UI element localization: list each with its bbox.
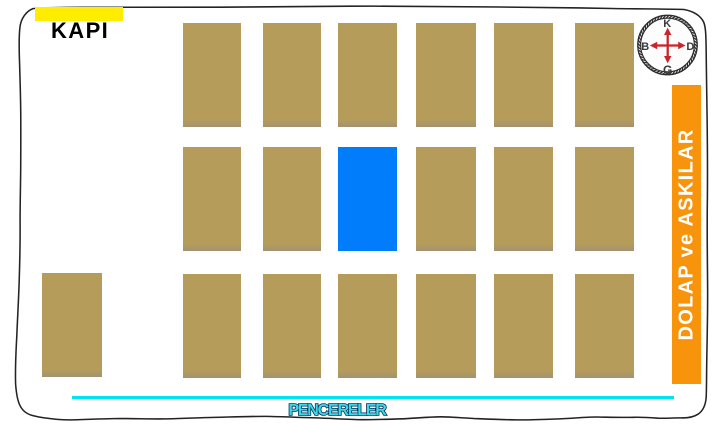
- svg-text:D: D: [686, 41, 694, 53]
- svg-text:K: K: [663, 18, 671, 30]
- svg-text:G: G: [663, 63, 672, 77]
- svg-text:B: B: [641, 41, 649, 53]
